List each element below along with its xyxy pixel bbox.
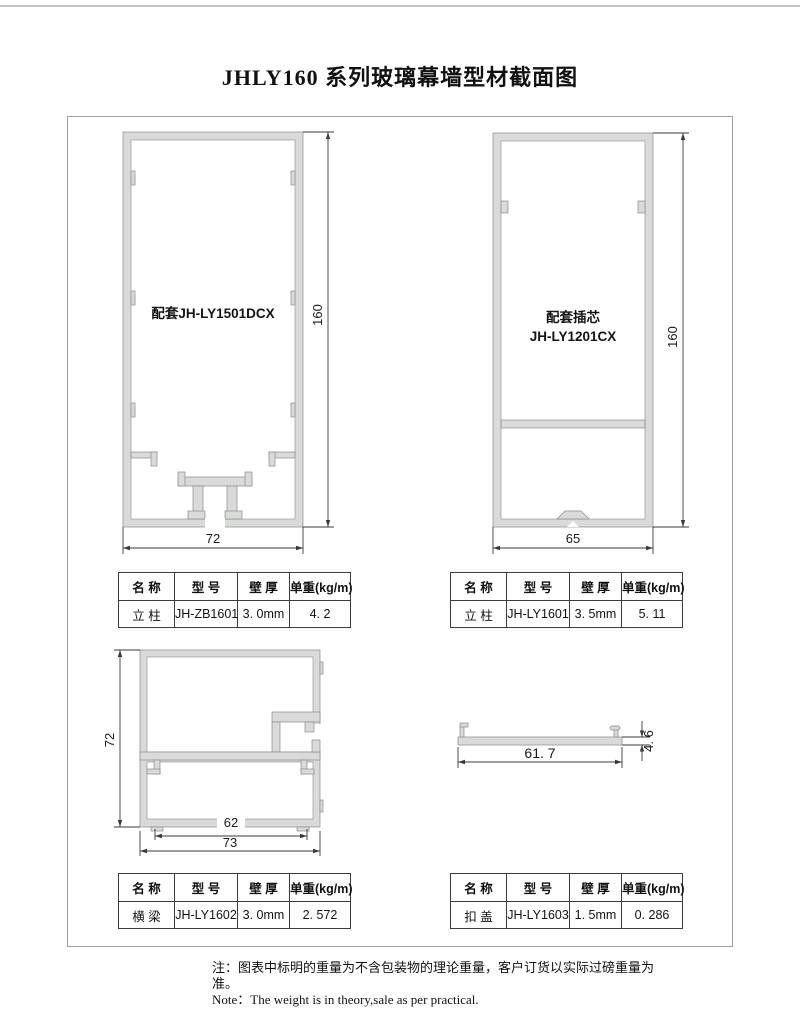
table-header-row: 名 称 型 号 壁 厚 单重(kg/m): [119, 573, 351, 601]
mullion-b-label-line1: 配套插芯: [546, 309, 600, 325]
table-header-row: 名 称 型 号 壁 厚 单重(kg/m): [119, 874, 351, 902]
header-cell-weight: 单重(kg/m): [622, 874, 683, 902]
mullion-b-width-dimension: 65: [493, 527, 653, 554]
header-cell-weight: 单重(kg/m): [290, 874, 351, 902]
cell-weight: 0. 286: [622, 902, 683, 929]
svg-text:65: 65: [566, 531, 580, 546]
svg-text:62: 62: [224, 815, 238, 830]
cell-model: JH-LY1603: [507, 902, 570, 929]
cell-name: 横 梁: [119, 902, 175, 929]
spec-table-mullion-a: 名 称 型 号 壁 厚 单重(kg/m) 立 柱 JH-ZB1601 3. 0m…: [118, 572, 351, 628]
cell-model: JH-LY1601: [507, 601, 570, 628]
cell-name: 立 柱: [119, 601, 175, 628]
cell-name: 立 柱: [451, 601, 507, 628]
mullion-b-label-line2: JH-LY1201CX: [530, 329, 617, 344]
cell-thickness: 3. 0mm: [238, 902, 290, 929]
svg-text:61. 7: 61. 7: [524, 745, 555, 761]
table-row: 横 梁 JH-LY1602 3. 0mm 2. 572: [119, 902, 351, 929]
svg-text:160: 160: [310, 304, 325, 326]
document-page: JHLY160 系列玻璃幕墙型材截面图 配套JH-LY1501DCX 160: [0, 0, 800, 1017]
footnote-chinese: 注：图表中标明的重量为不含包装物的理论重量，客户订货以实际过磅重量为准。: [212, 960, 672, 992]
drawing-beam: 72 62 73: [90, 640, 360, 865]
header-cell-model: 型 号: [175, 573, 238, 601]
beam-outer-width-dimension: 73: [140, 831, 320, 856]
header-cell-weight: 单重(kg/m): [290, 573, 351, 601]
table-row: 扣 盖 JH-LY1603 1. 5mm 0. 286: [451, 902, 683, 929]
table-row: 立 柱 JH-LY1601 3. 5mm 5. 11: [451, 601, 683, 628]
beam-height-dimension: 72: [102, 650, 140, 827]
header-cell-name: 名 称: [119, 573, 175, 601]
spec-table-cap: 名 称 型 号 壁 厚 单重(kg/m) 扣 盖 JH-LY1603 1. 5m…: [450, 873, 683, 929]
header-cell-weight: 单重(kg/m): [622, 573, 683, 601]
cell-weight: 5. 11: [622, 601, 683, 628]
table-header-row: 名 称 型 号 壁 厚 单重(kg/m): [451, 874, 683, 902]
beam-profile-shape: [140, 650, 324, 831]
cell-weight: 4. 2: [290, 601, 351, 628]
header-cell-thickness: 壁 厚: [570, 573, 622, 601]
header-cell-thickness: 壁 厚: [570, 874, 622, 902]
header-cell-model: 型 号: [507, 874, 570, 902]
header-cell-model: 型 号: [507, 573, 570, 601]
mullion-a-height-dimension: 160: [303, 132, 334, 527]
cell-thickness: 1. 5mm: [570, 902, 622, 929]
header-cell-name: 名 称: [451, 874, 507, 902]
header-cell-thickness: 壁 厚: [238, 874, 290, 902]
spec-table-mullion-b: 名 称 型 号 壁 厚 单重(kg/m) 立 柱 JH-LY1601 3. 5m…: [450, 572, 683, 628]
svg-text:4. 6: 4. 6: [641, 730, 656, 752]
svg-text:72: 72: [102, 733, 117, 747]
table-row: 立 柱 JH-ZB1601 3. 0mm 4. 2: [119, 601, 351, 628]
spec-table-beam: 名 称 型 号 壁 厚 单重(kg/m) 横 梁 JH-LY1602 3. 0m…: [118, 873, 351, 929]
header-cell-name: 名 称: [119, 874, 175, 902]
mullion-a-profile-shape: [123, 132, 303, 528]
cell-thickness: 3. 5mm: [570, 601, 622, 628]
drawing-cap: 61. 7 4. 6: [438, 690, 673, 790]
cell-model: JH-LY1602: [175, 902, 238, 929]
footnote-english: Note：The weight is in theory,sale as per…: [212, 992, 672, 1008]
footnotes: 注：图表中标明的重量为不含包装物的理论重量，客户订货以实际过磅重量为准。 Not…: [212, 960, 672, 1008]
cell-model: JH-ZB1601: [175, 601, 238, 628]
svg-text:72: 72: [206, 531, 220, 546]
cell-weight: 2. 572: [290, 902, 351, 929]
drawing-mullion-b: 配套插芯 JH-LY1201CX 160 65: [440, 125, 700, 565]
header-cell-thickness: 壁 厚: [238, 573, 290, 601]
svg-text:160: 160: [665, 326, 680, 348]
cell-thickness: 3. 0mm: [238, 601, 290, 628]
svg-text:73: 73: [223, 835, 237, 850]
cell-name: 扣 盖: [451, 902, 507, 929]
mullion-a-width-dimension: 72: [123, 527, 303, 554]
drawing-mullion-a: 配套JH-LY1501DCX 160 72: [100, 125, 350, 565]
header-cell-model: 型 号: [175, 874, 238, 902]
table-header-row: 名 称 型 号 壁 厚 单重(kg/m): [451, 573, 683, 601]
mullion-a-label: 配套JH-LY1501DCX: [151, 305, 274, 321]
top-divider-line: [0, 5, 800, 7]
cap-profile-shape: [458, 723, 622, 745]
cap-height-dimension: 4. 6: [622, 721, 656, 761]
cap-width-dimension: 61. 7: [458, 745, 622, 768]
header-cell-name: 名 称: [451, 573, 507, 601]
mullion-b-height-dimension: 160: [653, 133, 689, 527]
page-title: JHLY160 系列玻璃幕墙型材截面图: [0, 60, 800, 92]
